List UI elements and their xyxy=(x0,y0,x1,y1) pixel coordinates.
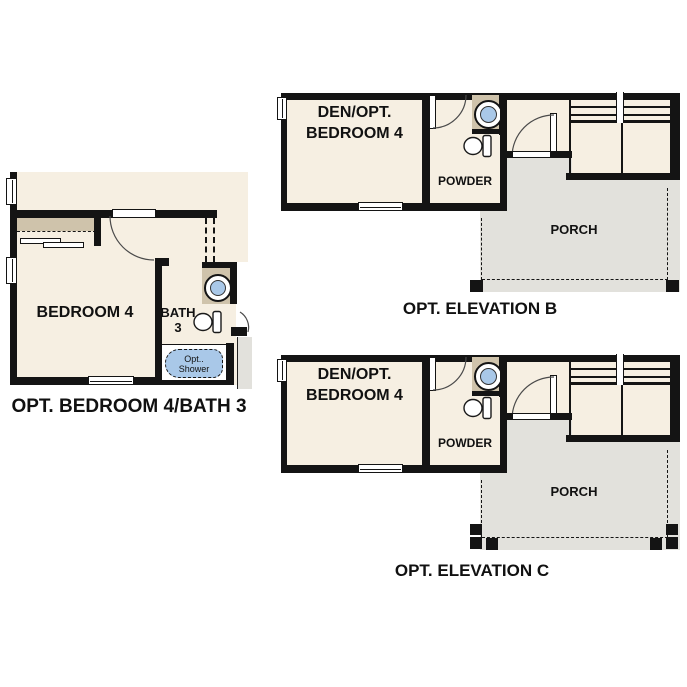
den-label: DEN/OPT. BEDROOM 4 xyxy=(292,364,417,406)
porch-edge-dashed xyxy=(482,537,668,538)
window-icon xyxy=(277,359,287,382)
window-icon xyxy=(358,464,403,473)
porch-post xyxy=(486,538,498,550)
door-swing-icon xyxy=(431,355,471,395)
stairs-side-line xyxy=(569,362,571,435)
sink-icon xyxy=(474,362,503,391)
stair-divider-line xyxy=(621,385,623,435)
entry-threshold xyxy=(512,413,552,420)
porch-post xyxy=(470,524,482,535)
porch-post xyxy=(666,537,678,549)
plan-caption: OPT. ELEVATION C xyxy=(372,561,572,581)
floorplan-sheet: BEDROOM 4 BATH 3 Opt.. Shower xyxy=(0,0,687,687)
porch-label: PORCH xyxy=(524,484,624,499)
porch-post xyxy=(666,524,678,535)
stairs-bottom-wall xyxy=(566,435,680,442)
powder-label: POWDER xyxy=(428,436,502,450)
porch-post xyxy=(470,537,482,549)
elevation-c-plan: DEN/OPT. BEDROOM 4 POWDER xyxy=(0,0,687,687)
toilet-icon xyxy=(463,396,493,420)
right-wall xyxy=(670,355,680,442)
porch-post xyxy=(650,538,662,550)
stair-rail xyxy=(616,354,624,385)
